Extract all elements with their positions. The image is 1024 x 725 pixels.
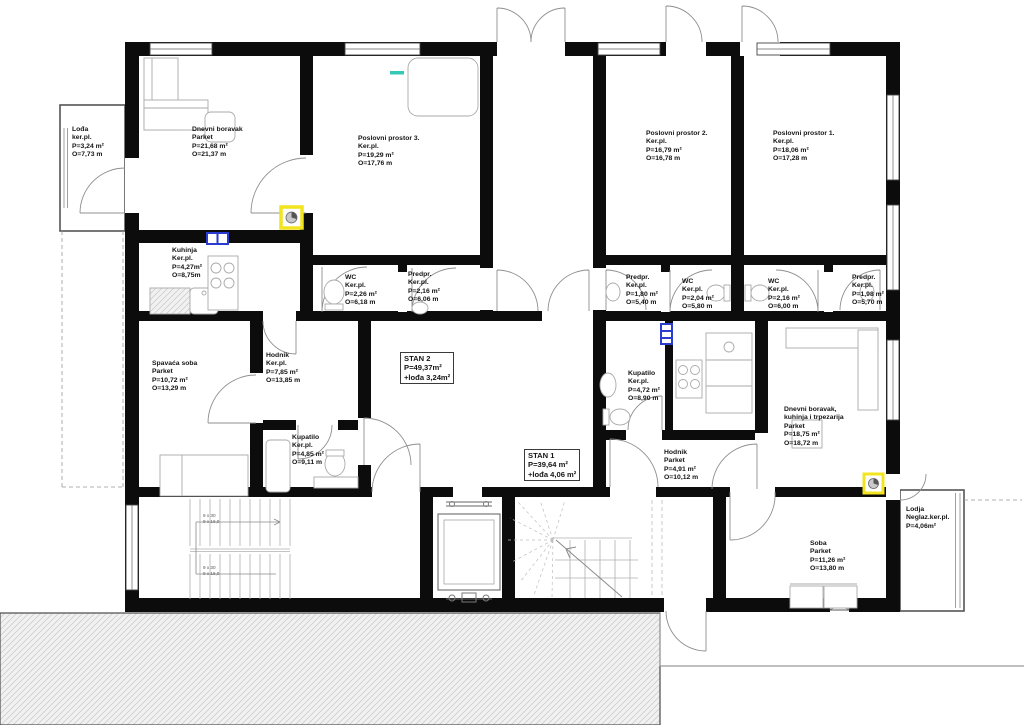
floorplan-canvas: Lođaker.pl.P=3,24 m²O=7,73 mDnevni borav… [0,0,1024,725]
room-label-wc-right-2: WCKer.pl.P=2,16 m²O=6,00 m [768,278,800,312]
room-label-spavaca-soba: Spavaća sobaParketP=10,72 m²O=13,29 m [152,360,197,394]
room-label-stan-2: STAN 2P=49,37m²+lođa 3,24m² [400,352,454,384]
room-label-predpr-left: Predpr.Ker.pl.P=2,16 m²O=6,06 m [408,271,440,305]
room-label-soba: SobaParketP=11,26 m²O=13,80 m [810,540,845,574]
room-label-stair-run-lower: 9 x 309 x 16,0 [203,565,219,576]
room-label-stair-run-upper: 9 x 309 x 16,0 [203,513,219,524]
room-label-predpr-right-1: Predpr.Ker.pl.P=1,80 m²O=5,40 m [626,274,658,308]
room-label-stan-1: STAN 1P=39,64 m²+lođa 4,06 m² [524,449,580,481]
room-label-poslovni-prostor-3: Poslovni prostor 3.Ker.pl.P=19,29 m²O=17… [358,135,420,169]
room-labels-layer: Lođaker.pl.P=3,24 m²O=7,73 mDnevni borav… [0,0,1024,725]
room-label-kuhinja: KuhinjaKer.pl.P=4,27m²O=8,75m [172,247,202,281]
room-label-lodza-left: Lođaker.pl.P=3,24 m²O=7,73 m [72,126,104,160]
room-label-poslovni-prostor-1: Poslovni prostor 1.Ker.pl.P=18,06 m²O=17… [773,130,835,164]
room-label-kupatilo-stan1: KupatiloKer.pl.P=4,72 m²O=8,90 m [628,370,660,404]
room-label-lodja-right: LodjaNeglaz.ker.pl.P=4,06m² [906,506,949,531]
room-label-kupatilo-stan2: KupatiloKer.pl.P=4,85 m²O=9,11 m [292,434,324,468]
room-label-wc-right-1: WCKer.pl.P=2,04 m²O=5,80 m [682,278,714,312]
room-label-hodnik-stan1: HodnikParketP=4,91 m²O=10,12 m [664,449,698,483]
room-label-poslovni-prostor-2: Poslovni prostor 2.Ker.pl.P=16,79 m²O=16… [646,130,708,164]
room-label-wc-left: WCKer.pl.P=2,26 m²O=6,18 m [345,274,377,308]
room-label-dnevni-boravak-left: Dnevni boravakParketP=21,68 m²O=21,37 m [192,126,243,160]
room-label-dnevni-boravak-desni: Dnevni boravak,kuhinja i trpezarijaParke… [784,406,844,448]
room-label-hodnik-stan2: HodnikKer.pl.P=7,85 m²O=13,85 m [266,352,300,386]
room-label-predpr-right-2: Predpr.Ker.pl.P=1,98 m²O=5,70 m [852,274,884,308]
